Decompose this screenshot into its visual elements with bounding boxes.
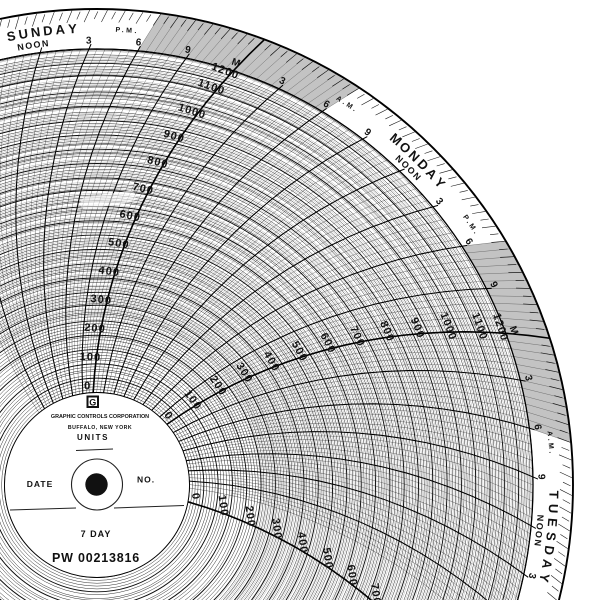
- svg-text:UNITS: UNITS: [77, 433, 109, 442]
- svg-text:DATE: DATE: [27, 479, 54, 489]
- svg-text:NO.: NO.: [137, 475, 155, 485]
- svg-text:E: E: [545, 518, 561, 528]
- svg-text:G: G: [89, 398, 96, 408]
- svg-text:N: N: [30, 24, 41, 40]
- svg-text:PW 00213816: PW 00213816: [52, 551, 140, 565]
- svg-text:A: A: [55, 22, 66, 38]
- svg-text:100: 100: [79, 351, 101, 364]
- svg-text:T: T: [546, 490, 561, 498]
- svg-text:300: 300: [90, 293, 113, 307]
- svg-text:N: N: [535, 514, 545, 521]
- svg-text:700: 700: [368, 583, 383, 600]
- svg-text:200: 200: [84, 322, 107, 336]
- svg-text:O: O: [534, 522, 545, 530]
- svg-text:0: 0: [84, 380, 91, 392]
- svg-text:BUFFALO, NEW YORK: BUFFALO, NEW YORK: [68, 425, 132, 431]
- svg-text:3: 3: [86, 36, 92, 47]
- svg-text:N: N: [41, 38, 49, 49]
- svg-text:7 DAY: 7 DAY: [81, 529, 112, 539]
- svg-text:O: O: [533, 530, 544, 538]
- svg-text:D: D: [42, 23, 53, 39]
- svg-text:U: U: [546, 503, 561, 513]
- svg-text:N: N: [532, 539, 543, 547]
- svg-text:GRAPHIC CONTROLS CORPORATION: GRAPHIC CONTROLS CORPORATION: [51, 414, 149, 420]
- svg-text:Y: Y: [68, 21, 78, 36]
- svg-text:O: O: [33, 39, 41, 50]
- svg-text:9: 9: [535, 474, 546, 480]
